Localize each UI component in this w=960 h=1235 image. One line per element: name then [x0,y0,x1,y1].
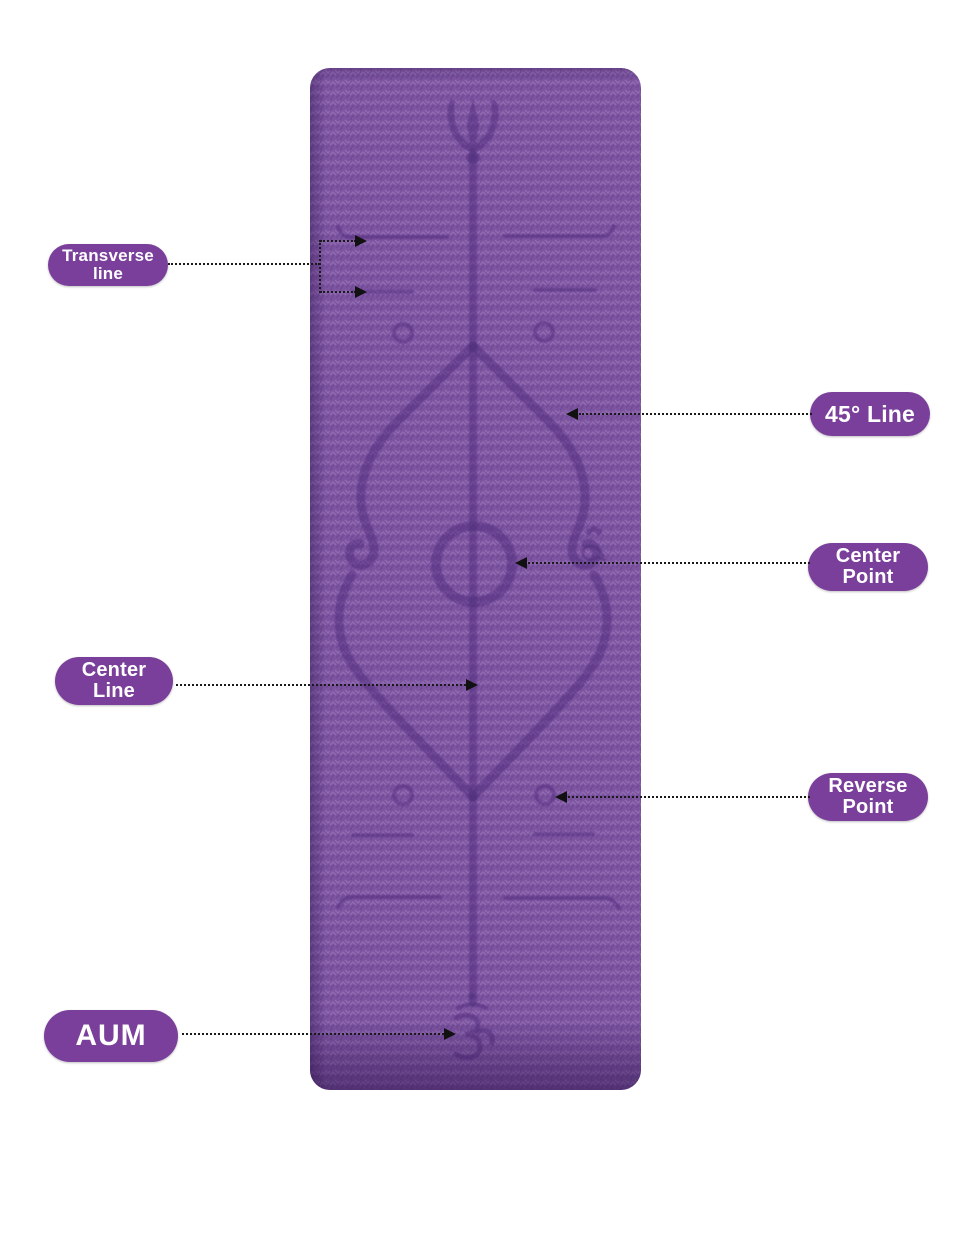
transverse-line-label: Transverse line [48,244,168,286]
mat-surface [310,68,641,1090]
transverse-line-bracket [319,240,321,293]
transverse-line-connector [168,263,320,265]
center-point-label-line1: Center [836,546,901,567]
center-line-label-line1: Center [82,660,147,681]
center-line-label: Center Line [55,657,173,705]
line-45-label-text: 45° Line [825,402,915,426]
line-45-label: 45° Line [810,392,930,436]
reverse-point-label-line2: Point [843,797,894,818]
center-point-label-line2: Point [843,567,894,588]
yoga-mat-image [310,68,641,1090]
transverse-line-arrow-bottom-icon [355,286,367,298]
center-point-arrow-icon [515,557,527,569]
product-infographic: Transverse line 45° Line Center Point Ce… [0,0,960,1235]
transverse-line-arm-top [320,240,356,242]
transverse-line-label-line2: line [93,265,123,283]
aum-label-text: AUM [75,1021,146,1051]
aum-arrow-icon [444,1028,456,1040]
center-line-label-line2: Line [93,681,135,702]
center-line-connector [176,684,466,686]
reverse-point-connector [568,796,810,798]
transverse-line-label-line1: Transverse [62,247,154,265]
line-45-connector [579,413,812,415]
mat-top-edge-shadow [310,68,641,1090]
center-line-arrow-icon [466,679,478,691]
transverse-line-arrow-top-icon [355,235,367,247]
aum-label: AUM [44,1010,178,1062]
center-point-label: Center Point [808,543,928,591]
aum-connector [182,1033,444,1035]
reverse-point-arrow-icon [555,791,567,803]
line-45-arrow-icon [566,408,578,420]
center-point-connector [528,562,810,564]
reverse-point-label: Reverse Point [808,773,928,821]
transverse-line-arm-bottom [320,291,356,293]
reverse-point-label-line1: Reverse [828,776,907,797]
yoga-mat-graphic [310,68,641,1090]
